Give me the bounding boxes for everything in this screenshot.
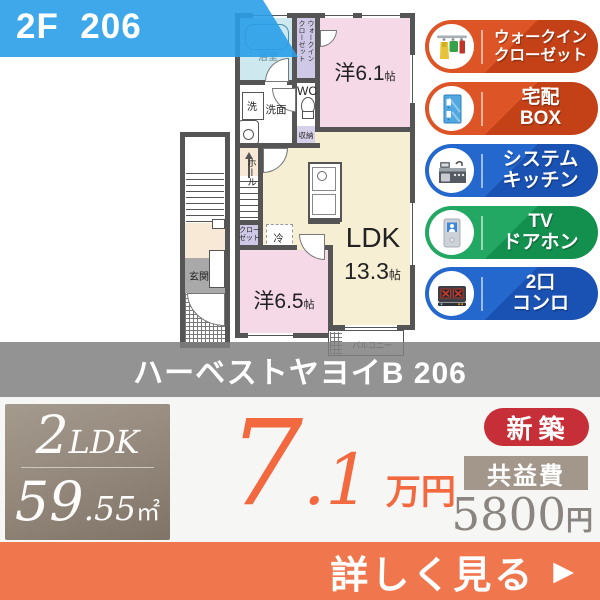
walkin-closet-icon <box>429 24 474 69</box>
closet-line2: ゼット <box>239 235 259 243</box>
ldk-size-label: 13.3帖 <box>330 258 415 285</box>
washroom-label: 洗面 <box>258 102 294 117</box>
wall-segment <box>235 245 297 250</box>
common-fee-label: 共益費 <box>464 456 588 490</box>
feature-line1: 宅配 <box>483 88 598 109</box>
wall-segment <box>297 78 315 83</box>
ldk-size: 13.3 <box>344 258 389 284</box>
delivery-box-icon <box>429 86 474 131</box>
layout-area-box: 2LDK 59.55㎡ <box>5 404 170 540</box>
storage-label: 収納 <box>296 130 316 141</box>
walkin-line2: クローゼット <box>297 20 306 78</box>
feature-label: システム キッチン <box>483 150 598 192</box>
room2-unit: 帖 <box>304 299 315 311</box>
details-button[interactable]: 詳しく見る ▶ <box>0 542 600 600</box>
property-listing-card: 浴室 ウォークイン クローゼット 洗 洗面 WC 収納 洋6.1帖 ホール クロ… <box>0 0 600 600</box>
area-int: 59 <box>15 470 84 533</box>
divider <box>21 467 154 468</box>
window-mark <box>248 333 293 338</box>
feature-badge-two-burner-stove: 2口 コンロ <box>425 267 598 320</box>
feature-line2: BOX <box>483 109 598 130</box>
fee-amount: 5800 <box>451 492 566 537</box>
room2-label: 洋6.5帖 <box>240 285 328 315</box>
window-mark <box>410 55 415 103</box>
rent-price: 7.1万円 <box>228 404 468 534</box>
ldk-label: LDK <box>333 222 413 254</box>
annex-stairs <box>186 168 224 223</box>
floor-unit-label: 2F 206 <box>16 7 142 47</box>
wall-segment <box>240 80 265 85</box>
feature-line1: ウォークイン <box>483 29 598 46</box>
room1-unit: 帖 <box>385 71 396 83</box>
room1-size: 洋6.1 <box>334 62 384 85</box>
annex-window-box <box>212 219 225 229</box>
area-value: 59.55㎡ <box>5 470 170 533</box>
feature-line2: コンロ <box>483 294 598 315</box>
rent-int: 7 <box>228 404 303 522</box>
feature-line2: ドアホン <box>483 233 598 254</box>
feature-line2: キッチン <box>483 171 598 192</box>
walkin-closet-label: ウォークイン クローゼット <box>297 20 315 78</box>
tv-doorphone-icon <box>429 210 474 255</box>
right-arrow-icon: ▶ <box>553 556 574 587</box>
feature-line1: システム <box>483 150 598 171</box>
window-mark <box>325 13 353 18</box>
new-badge-label: 新築 <box>506 409 570 446</box>
feature-label: 2口 コンロ <box>483 273 598 315</box>
walkin-line1: ウォークイン <box>306 20 315 78</box>
wall-segment <box>315 127 415 132</box>
system-kitchen-icon <box>429 148 474 193</box>
toilet-tank-icon <box>302 111 314 119</box>
fee-unit: 円 <box>566 499 593 538</box>
layout-number: 2 <box>36 406 69 466</box>
feature-line1: 2口 <box>483 273 598 294</box>
details-button-label: 詳しく見る <box>330 544 535 599</box>
hall-label: ホール <box>241 150 257 194</box>
kitchen-faucet-icon <box>317 171 327 181</box>
feature-label: 宅配 BOX <box>483 88 598 130</box>
property-title-band: ハーベストヤヨイB 206 <box>0 342 600 397</box>
ldk-unit: 帖 <box>389 268 401 282</box>
wc-label: WC <box>297 84 315 98</box>
two-burner-stove-icon <box>429 271 474 316</box>
area-dec: .55 <box>84 489 136 528</box>
fridge-label: 冷 <box>266 230 291 245</box>
fee-label-text: 共益費 <box>487 456 565 491</box>
closet-line1: クロー <box>239 227 259 235</box>
room2-size: 洋6.5 <box>253 290 303 313</box>
feature-badge-delivery-box: 宅配 BOX <box>425 82 598 135</box>
feature-line2: クローゼット <box>483 47 598 64</box>
common-fee-value: 5800円 <box>440 492 593 534</box>
feature-line1: TV <box>483 212 598 233</box>
sink-bowl-icon <box>243 129 254 140</box>
layout-type: LDK <box>69 423 140 461</box>
feature-label: TV ドアホン <box>483 212 598 254</box>
entrance-label: 玄関 <box>186 268 212 283</box>
room1-label: 洋6.1帖 <box>320 57 410 87</box>
feature-badge-system-kitchen: システム キッチン <box>425 144 598 197</box>
closet-label: クロー ゼット <box>239 227 259 243</box>
feature-badge-tv-doorphone: TV ドアホン <box>425 206 598 259</box>
kitchen-counter <box>312 194 336 215</box>
new-construction-badge: 新築 <box>484 408 589 446</box>
rent-dec: .1 <box>303 445 370 515</box>
window-mark <box>362 13 400 18</box>
feature-badge-walkin-closet: ウォークイン クローゼット <box>425 20 598 73</box>
feature-label: ウォークイン クローゼット <box>483 29 598 63</box>
wall-segment <box>240 220 263 225</box>
property-title: ハーベストヤヨイB 206 <box>133 348 467 392</box>
layout-value: 2LDK <box>5 406 170 466</box>
area-unit: ㎡ <box>136 498 160 526</box>
